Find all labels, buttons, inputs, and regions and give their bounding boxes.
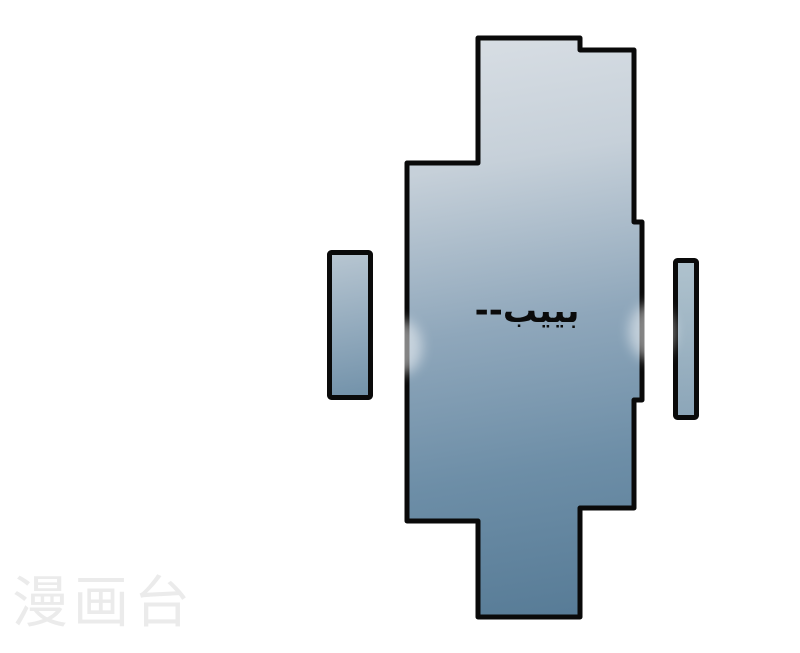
fog-highlight <box>382 320 422 374</box>
right-accent-bar <box>676 261 697 418</box>
watermark-text: 漫画台 <box>12 576 195 632</box>
fog-highlight <box>629 303 675 361</box>
left-accent-bar <box>330 253 371 398</box>
sfx-text: بييب-- <box>447 293 607 330</box>
panel-artwork <box>0 0 800 653</box>
comic-page: بييب-- 漫画台 <box>0 0 800 653</box>
